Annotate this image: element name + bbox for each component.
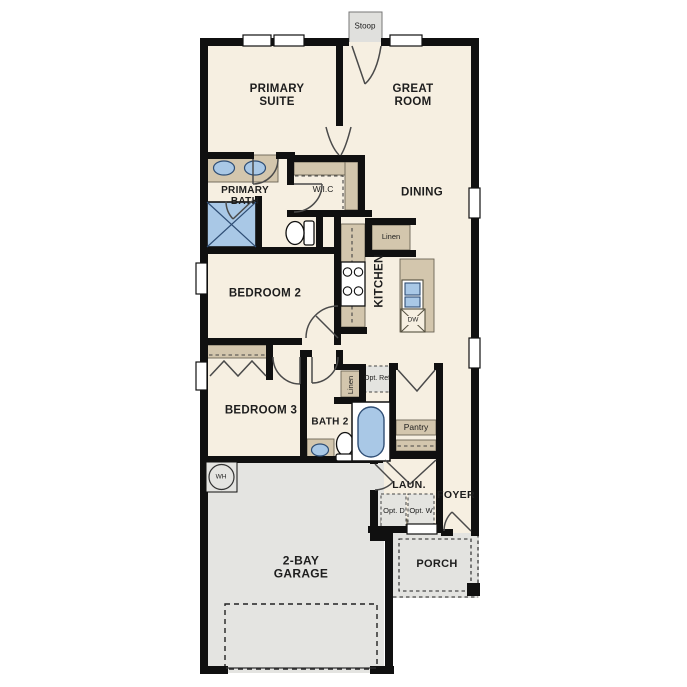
wall [471,38,479,536]
window [469,338,480,368]
wall [316,217,323,249]
island-sink-icon [402,280,423,309]
label-optional-washer: Opt. W [408,507,434,515]
room-label-great-room: GREAT ROOM [378,83,448,109]
label-dishwasher: DW [408,316,419,323]
window [469,188,480,218]
room-label-bedroom2: BEDROOM 2 [210,288,320,301]
room-label-wic: W.I.C [298,185,348,195]
floor-plan: Stoop PRIMARY SUITE GREAT ROOM PRIMARY B… [0,0,687,687]
window [407,524,437,534]
wall [300,350,312,357]
wall [336,42,343,126]
room-label-bath2: BATH 2 [310,416,350,427]
window [243,35,271,46]
wall [368,526,408,533]
label-optional-dryer: Opt. D [381,507,407,515]
wall [200,338,302,345]
wall [200,247,341,254]
shower-icon [207,202,256,247]
wall [359,364,366,404]
bathtub-icon [352,402,390,461]
window [196,263,207,294]
room-label-bedroom3: BEDROOM 3 [206,405,316,418]
room-label-foyer: FOYER [430,490,482,502]
wall [200,666,228,674]
sink-icon [245,161,266,175]
room-label-dining: DINING [387,187,457,200]
room-label-porch: PORCH [407,558,467,570]
wall [266,338,273,380]
label-pantry: Pantry [396,423,436,433]
window [274,35,304,46]
room-label-kitchen: KITCHEN [374,254,387,307]
wall [200,152,254,159]
room-label-stoop: Stoop [355,23,376,32]
bedroom3-closet-shelf [207,345,267,358]
wall [365,218,416,225]
wall [385,533,393,674]
range-icon [341,262,365,306]
wall [441,529,453,536]
floor-plan-drawing [0,0,687,687]
wall [334,327,367,334]
window [196,362,207,390]
sink-icon [312,444,329,456]
wall [200,38,208,673]
room-label-primary-suite: PRIMARY SUITE [232,83,322,109]
label-linen-lower: Linen [347,376,355,394]
wall [358,155,365,217]
porch-post [467,583,480,596]
label-water-heater: WH [216,473,227,480]
label-optional-refrigerator: Opt. Ref. [364,375,392,383]
wall [287,155,365,162]
toilet-icon [286,221,314,245]
wall [334,217,341,345]
room-label-garage: 2-BAY GARAGE [256,555,346,582]
wall [436,363,443,533]
window [390,35,422,46]
sink-icon [214,161,235,175]
wall [389,363,398,370]
room-label-primary-bath: PRIMARY BATH [210,185,280,207]
room-label-laundry: LAUN. [384,480,434,492]
label-linen-upper: Linen [371,233,411,241]
